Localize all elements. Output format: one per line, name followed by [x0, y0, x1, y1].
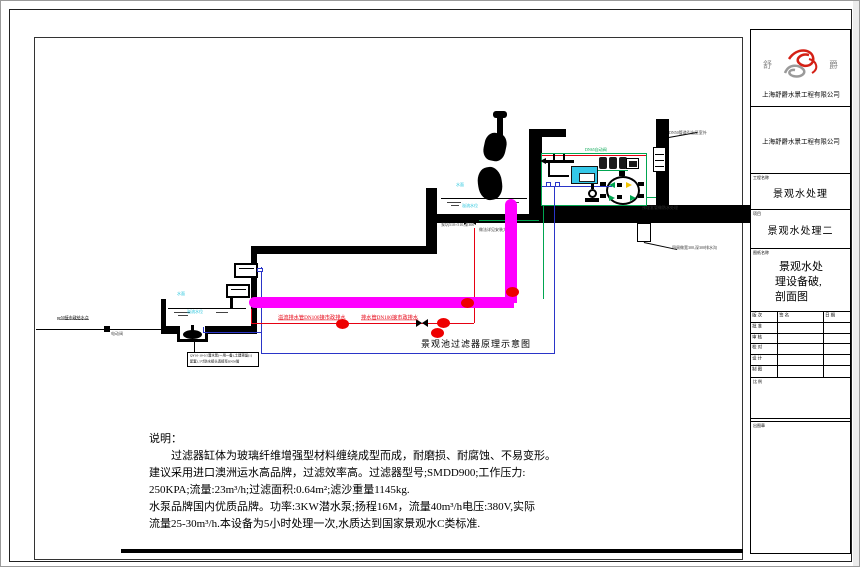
upper-overflow-level-label: 溢流水位	[462, 204, 478, 208]
sheet-right-margin	[853, 1, 860, 567]
sig-header-date: 日 期	[824, 312, 850, 323]
water-tick	[447, 202, 461, 203]
drain-pipe-label: 排水管DN100接市政排水	[361, 315, 418, 320]
sleeve-leader	[631, 210, 641, 211]
control-cabinet	[571, 166, 598, 184]
vent-louver	[653, 147, 666, 172]
valve-actuator	[599, 157, 607, 169]
machine-room-slab	[529, 205, 751, 223]
room-pump-base	[585, 198, 599, 202]
sleeve-note: 预埋套管做防水处理	[642, 206, 678, 210]
pump-note-leader	[194, 342, 195, 352]
drain-pit-under-slab	[637, 223, 651, 242]
flow-arrow-green	[609, 182, 615, 188]
submersible-pump-lower	[183, 330, 202, 339]
sig-row-review: 审 核	[751, 334, 778, 345]
room-pump-stem	[591, 184, 594, 189]
upper-pool-left-wall	[426, 188, 437, 254]
sheet-name-box: 图纸名称 景观水处 理设备破, 剖面图	[751, 249, 850, 312]
supply-pipe-line2	[110, 329, 163, 330]
cabinet-panel	[579, 173, 595, 182]
tank-internal-port	[617, 195, 622, 199]
pit-note1: 泵坑510×510,深300	[441, 223, 474, 227]
manifold-run-pipe	[548, 175, 569, 177]
notes-line: 流量25-30m³/h.本设备为5小时处理一次,水质达到国家景观水C类标准.	[149, 516, 579, 533]
green-tank-line	[647, 197, 656, 198]
item-name-box: 项目 景观水处理二	[751, 210, 850, 249]
sig-row-design: 设 计	[751, 355, 778, 366]
logo-left-char: 舒	[763, 58, 772, 71]
notes-line: 250KPA;流量:23m³/h;过滤面积:0.64m²;滤沙重量1145kg.	[149, 482, 579, 499]
valve-actuator	[609, 157, 617, 169]
scale-box: 比 例	[751, 377, 850, 419]
actuator-base	[618, 170, 628, 171]
project-label: 工程名称	[753, 175, 769, 181]
green-riser-line	[543, 206, 544, 299]
pipe-junction-dot	[336, 319, 349, 329]
magenta-pipe-horizontal	[249, 297, 514, 308]
tank-port	[600, 182, 606, 186]
notes-heading: 说明：	[149, 431, 579, 448]
blue-room-line	[542, 186, 612, 187]
blue-riser-line	[554, 187, 555, 353]
flow-arrow-green	[630, 195, 636, 201]
drawing-viewer: pe50接市政给水点 电动阀 水面 溢流水位 QY10-10-0.5潜水泵(一用…	[0, 0, 860, 567]
sheet-name-line3: 剖面图	[775, 292, 808, 304]
manifold-valve-handle	[553, 154, 555, 160]
flow-arrow-yellow	[626, 182, 632, 188]
lower-pool-waterline	[168, 308, 246, 309]
manifold-valve-handle	[563, 154, 565, 160]
sig-header-stage: 版 次	[751, 312, 778, 323]
pump-pit-wall-right	[205, 328, 208, 342]
pump-note-box: QY10-10-0.5潜水泵(一用一备),土建预留(1) 配套1.5寸防水接头连…	[187, 352, 259, 367]
notes-line: 过滤器缸体为玻璃纤维增强型材料缠绕成型而成，耐磨损、耐腐蚀、不易变形。	[149, 448, 579, 465]
blue-room-valve	[555, 182, 560, 187]
blue-step-line	[261, 267, 262, 353]
drain-line-valve-icon	[422, 319, 428, 327]
sig-header-signature: 签 名	[778, 312, 824, 323]
frame-bottom-bar	[121, 549, 743, 553]
overflow-pipe-label: 溢流排水管DN100接市政排水	[278, 315, 346, 320]
company-name-mid: 上海舒爵水景工程有限公司	[762, 138, 840, 145]
manifold-arrow	[540, 158, 546, 164]
pipe-junction-dot	[461, 298, 474, 308]
sheet-name-line1: 景观水处	[779, 262, 823, 274]
red-drain-stub	[251, 309, 252, 323]
flow-arrow-green	[609, 195, 615, 201]
room-red-line	[542, 155, 646, 156]
pump-note-line1: QY10-10-0.5潜水泵(一用一备),土建预留(1)	[190, 354, 252, 358]
title-company-box: 上海舒爵水景工程有限公司	[751, 107, 850, 174]
notes-block: 说明： 过滤器缸体为玻璃纤维增强型材料缠绕成型而成，耐磨损、耐腐蚀、不易变形。 …	[149, 431, 579, 533]
tank-internal-port	[617, 183, 622, 187]
blue-bottom-line	[261, 353, 555, 354]
item-name: 景观水处理二	[768, 227, 834, 238]
logo-right-char: 爵	[829, 58, 838, 71]
sig-row-draft: 制 图	[751, 366, 778, 377]
lower-overflow-level-label: 溢流水位	[187, 310, 203, 314]
electric-valve-label: 电动阀	[111, 332, 123, 336]
sheet-label: 图纸名称	[753, 250, 769, 256]
red-drain-riser	[474, 228, 475, 323]
lower-water-surface-label: 水面	[177, 292, 185, 296]
pipe-junction-dot	[437, 318, 450, 328]
water-tick	[178, 315, 188, 316]
signature-table: 版 次 签 名 日 期 批 准 审 核 校 对 设 计 制 图	[751, 312, 850, 377]
room-note: DN65自动阀	[585, 148, 607, 152]
title-block: 舒 爵 上海舒爵水景工程有限公司 上海舒爵水景工程有限公司 工程名称 景观水处理…	[750, 29, 851, 554]
water-tick	[216, 312, 228, 313]
cascade-step-lower	[226, 284, 250, 298]
notes-line: 水泵品牌国内优质品牌。功率:3KW潜水泵;扬程16M，流量40m³/h电压:38…	[149, 499, 579, 516]
project-name: 景观水处理	[773, 190, 828, 201]
manifold-pipe	[546, 160, 574, 163]
blue-pump-connector	[203, 332, 261, 333]
blue-pump-drop	[203, 327, 204, 333]
tank-port	[638, 182, 644, 186]
scale-label: 比 例	[753, 379, 762, 385]
supply-label: pe50接市政给水点	[57, 316, 89, 320]
tank-port	[638, 194, 644, 198]
pipe-junction-dot	[506, 287, 519, 297]
title-logo-box: 舒 爵 上海舒爵水景工程有限公司	[751, 30, 850, 107]
step-support	[230, 298, 233, 308]
company-name-top: 上海舒爵水景工程有限公司	[762, 91, 840, 98]
room-pump	[588, 189, 597, 198]
blue-room-valve	[546, 182, 551, 187]
sig-row-check: 校 对	[751, 344, 778, 355]
item-label: 项目	[753, 211, 761, 217]
actuator-base	[608, 170, 618, 171]
project-name-box: 工程名称 景观水处理	[751, 174, 850, 210]
cascade-step-upper	[234, 263, 258, 278]
upper-water-surface-label: 水面	[456, 183, 464, 187]
supply-pipe-line	[36, 329, 104, 330]
mid-deck-slab	[253, 246, 437, 254]
stamp-label: 出图章	[753, 423, 765, 429]
pump-outlet-stub	[191, 325, 194, 331]
ditch-note: 四周做宽300,深300排水沟	[672, 246, 717, 250]
electrical-panel	[626, 158, 639, 169]
pipe-junction-dot	[431, 328, 444, 338]
pump-pit-bottom	[177, 339, 208, 342]
stamp-box: 出图章	[751, 421, 850, 556]
blue-step-valve	[257, 268, 263, 272]
sig-row-approve: 批 准	[751, 323, 778, 334]
water-tick	[451, 205, 459, 206]
machine-room-lintel	[542, 129, 566, 137]
vent-note: DN50管道引出至室外	[669, 131, 707, 135]
sheet-name-line2: 理设备破,	[775, 277, 822, 289]
notes-line: 建议采用进口澳洲运水高品牌，过滤效率高。过滤器型号;SMDD900;工作压力:	[149, 465, 579, 482]
tank-port	[600, 194, 606, 198]
pump-note-line2: 配套1.5寸防水接头连接至DN50管	[190, 360, 239, 364]
actuator-base	[598, 170, 608, 171]
drawing-caption: 景观池过滤器原理示意图	[421, 340, 531, 349]
company-logo	[779, 45, 823, 83]
